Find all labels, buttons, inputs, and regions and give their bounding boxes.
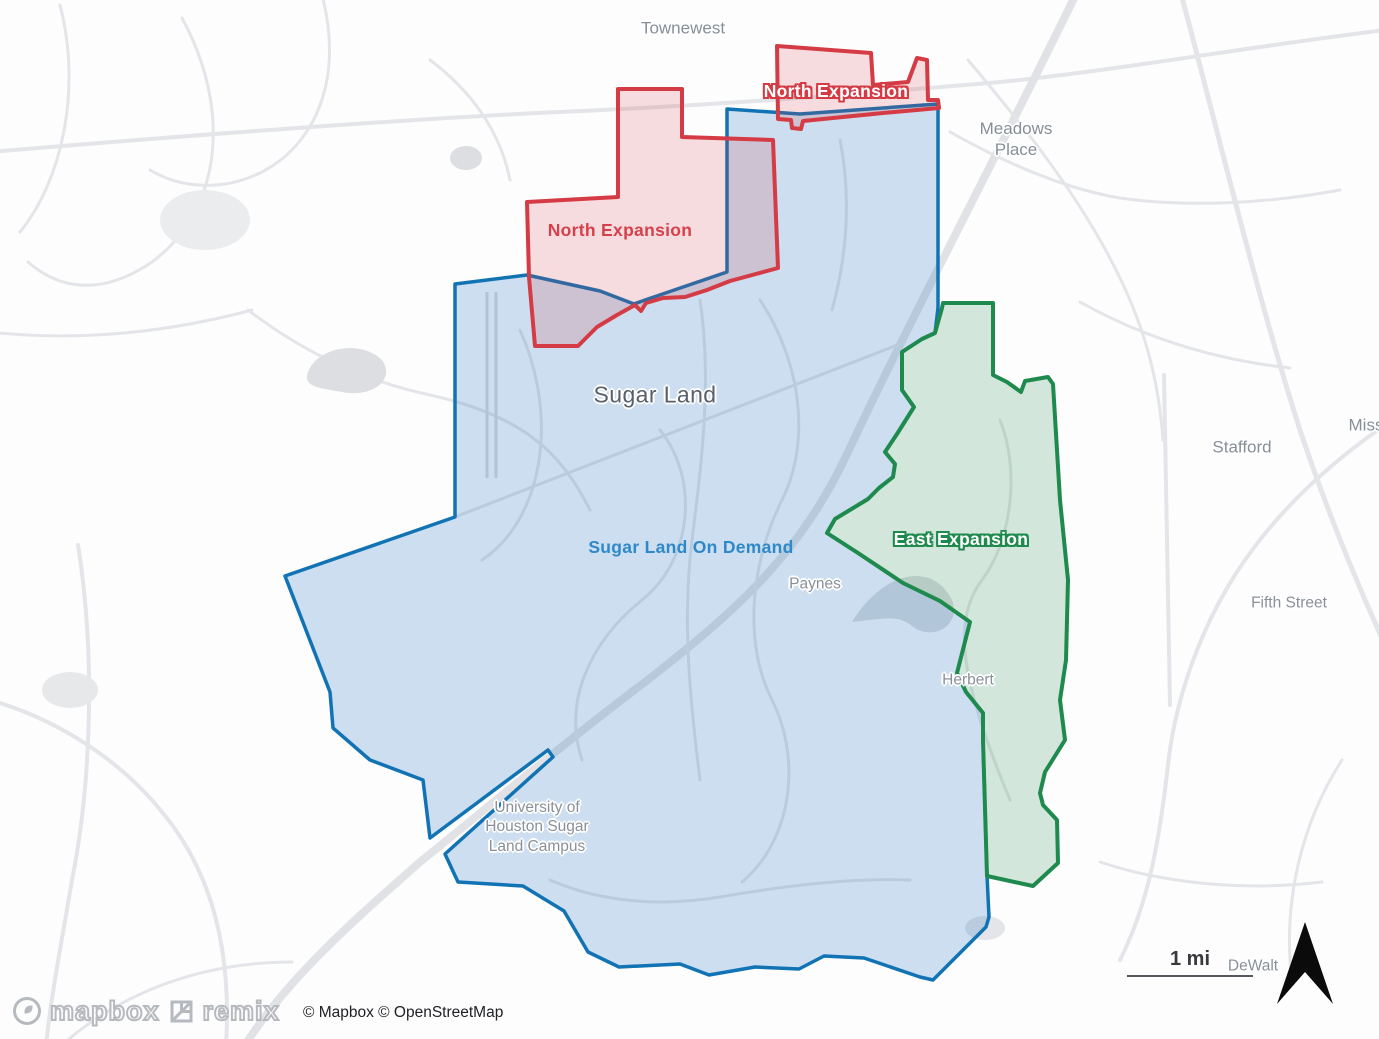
scale-bar: 1 mi xyxy=(1127,948,1253,977)
zones-layer xyxy=(285,46,1068,980)
map-svg xyxy=(0,0,1379,1039)
scale-line xyxy=(1127,975,1253,977)
scale-label: 1 mi xyxy=(1127,948,1253,971)
north-arrow-icon xyxy=(1277,922,1333,1004)
remix-logo-icon[interactable] xyxy=(168,998,195,1025)
remix-logo[interactable]: remix xyxy=(203,998,280,1025)
map-canvas[interactable]: Sugar Land On DemandEast ExpansionNorth … xyxy=(0,0,1379,1039)
map-attribution[interactable]: © Mapbox © OpenStreetMap xyxy=(303,1004,503,1022)
mapbox-logo[interactable]: mapbox xyxy=(50,998,160,1025)
mapbox-logo-icon[interactable] xyxy=(12,996,42,1026)
